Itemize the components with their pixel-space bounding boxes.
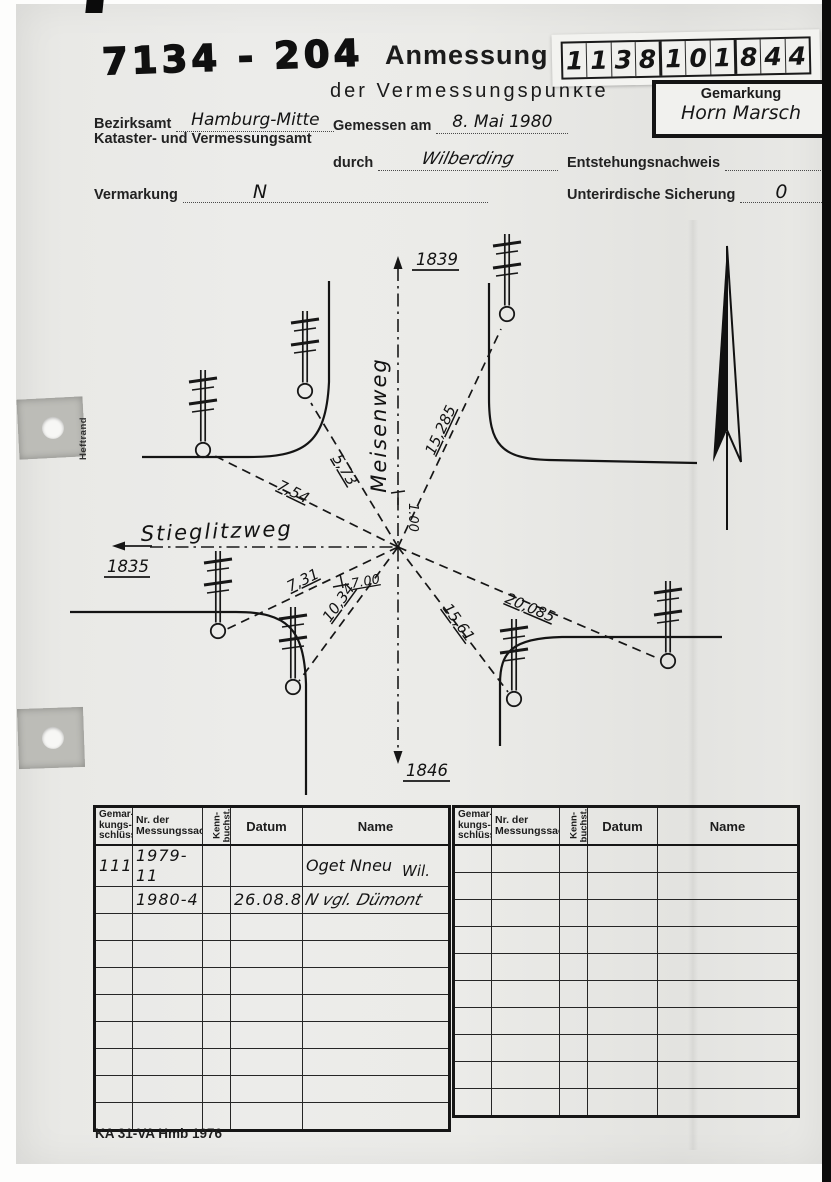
table-row: 1111979-11Oget NneuWil. — [95, 845, 450, 887]
table-cell — [454, 954, 492, 981]
table-cell — [454, 1062, 492, 1089]
arrow-down-icon — [394, 751, 403, 764]
survey-point-icon — [291, 311, 319, 398]
measurement-label: 15,285 — [421, 403, 460, 458]
table-cell — [492, 981, 560, 1008]
table-cell — [303, 941, 450, 968]
header-datum: Datum — [588, 807, 658, 846]
table-cell — [133, 1076, 203, 1103]
offset-label: 7.00 — [350, 572, 381, 592]
table-cell — [560, 1089, 588, 1117]
table-cell — [454, 1089, 492, 1117]
header-gemarkungsschluessel: Gemar- kungs- schlüssel — [454, 807, 492, 846]
table-cell — [95, 968, 133, 995]
table-cell: Oget NneuWil. — [303, 845, 450, 887]
dotted-line: 8. Mai 1980 — [436, 109, 568, 134]
table-cell — [658, 1035, 799, 1062]
measurement-label: 20,085 — [502, 589, 557, 626]
table-cell — [133, 995, 203, 1022]
table-row: 1980-426.08.80N vgl. Dümont — [95, 887, 450, 914]
corner-mark — [85, 0, 103, 13]
survey-point-icon — [654, 581, 682, 668]
table-cell — [203, 845, 231, 887]
table-row — [454, 1062, 799, 1089]
table-cell — [203, 941, 231, 968]
table-cell: 26.08.80 — [231, 887, 303, 914]
dotted-line — [725, 146, 831, 171]
form-code: KA 31-VA Hmb 1976 — [95, 1126, 222, 1141]
table-cell — [454, 1035, 492, 1062]
table-cell — [303, 995, 450, 1022]
record-table-left: Gemar- kungs- schlüssel Nr. der Messungs… — [93, 805, 451, 1132]
table-cell — [658, 845, 799, 873]
table-cell: N vgl. Dümont — [303, 887, 450, 914]
field-label: Bezirksamt — [94, 116, 171, 132]
table-cell — [560, 981, 588, 1008]
table-cell — [492, 900, 560, 927]
table-cell — [133, 914, 203, 941]
table-cell — [492, 1035, 560, 1062]
table-cell — [454, 1008, 492, 1035]
table-cell — [231, 914, 303, 941]
table-cell — [133, 968, 203, 995]
field-value: 0 — [775, 181, 787, 203]
table-cell — [658, 981, 799, 1008]
field-label: Entstehungsnachweis — [567, 155, 720, 171]
table-cell — [492, 1062, 560, 1089]
number-stamp: 1 1 3 8 1 0 1 8 4 4 — [551, 29, 820, 87]
table-cell — [203, 1076, 231, 1103]
table-cell — [492, 1089, 560, 1117]
stamp-cells: 1 1 3 8 1 0 1 8 4 4 — [561, 36, 812, 79]
record-table-right: Gemar- kungs- schlüssel Nr. der Messungs… — [452, 805, 800, 1118]
table-cell: 1979-11 — [133, 845, 203, 887]
table-cell — [492, 954, 560, 981]
table-cell — [560, 1035, 588, 1062]
form-title: Anmessung — [385, 40, 549, 71]
table-cell — [133, 941, 203, 968]
table-cell — [560, 1008, 588, 1035]
stamp-digit: 1 — [662, 41, 687, 76]
point-number-left: 1835 — [107, 557, 149, 576]
offset-tick-icon — [391, 491, 405, 505]
table-cell — [133, 1049, 203, 1076]
table-row — [454, 900, 799, 927]
table-cell — [95, 914, 133, 941]
survey-sketch: 1839 1846 1835 Stieglitzweg Meisenweg — [0, 230, 831, 810]
field-label: Vermarkung — [94, 187, 178, 203]
table-cell — [95, 995, 133, 1022]
gemarkung-label: Gemarkung — [656, 86, 826, 102]
field-unterirdische-sicherung: Unterirdische Sicherung 0 — [567, 179, 822, 203]
street-centerlines — [118, 268, 398, 754]
table-cell — [658, 1062, 799, 1089]
table-cell — [560, 1062, 588, 1089]
table-row — [454, 1008, 799, 1035]
table-cell — [231, 1022, 303, 1049]
document-number: 7134 - 204 — [101, 31, 364, 83]
table-cell — [303, 1076, 450, 1103]
table-cell — [658, 954, 799, 981]
table-cell — [231, 995, 303, 1022]
table-cell — [95, 1022, 133, 1049]
header-name: Name — [303, 807, 450, 846]
table-cell — [95, 1049, 133, 1076]
table-cell — [560, 927, 588, 954]
stamp-digit: 1 — [587, 43, 612, 78]
offset-label: 1.00 — [405, 503, 420, 532]
table-cell — [588, 954, 658, 981]
table-row — [95, 995, 450, 1022]
table-cell — [231, 941, 303, 968]
table-row — [454, 845, 799, 873]
table-header-row: Gemar- kungs- schlüssel Nr. der Messungs… — [95, 807, 450, 846]
table-cell — [203, 914, 231, 941]
table-cell — [492, 1008, 560, 1035]
table-header-row: Gemar- kungs- schlüssel Nr. der Messungs… — [454, 807, 799, 846]
table-cell — [492, 845, 560, 873]
gemarkung-value: Horn Marsch — [656, 102, 826, 124]
table-cell — [588, 927, 658, 954]
arrow-up-icon — [394, 256, 403, 269]
field-bezirksamt: Bezirksamt Hamburg-Mitte — [94, 108, 334, 132]
table-cell — [658, 1008, 799, 1035]
measurement-label: 7,31 — [284, 565, 322, 596]
table-cell — [303, 1049, 450, 1076]
north-arrow-icon — [713, 246, 741, 530]
table-cell — [588, 873, 658, 900]
field-value: Wilberding — [420, 149, 517, 169]
table-row — [454, 981, 799, 1008]
table-row — [454, 927, 799, 954]
table-cell — [454, 845, 492, 873]
table-cell — [588, 1008, 658, 1035]
table-cell — [588, 981, 658, 1008]
table-cell — [658, 1089, 799, 1117]
table-cell — [658, 927, 799, 954]
table-row — [95, 1049, 450, 1076]
header-messungssache: Nr. der Messungssache — [492, 807, 560, 846]
table-cell — [303, 914, 450, 941]
gemarkung-box: Gemarkung Horn Marsch — [652, 80, 830, 138]
measurement-label: 7,54 — [274, 476, 312, 507]
survey-point-icon — [204, 551, 232, 638]
field-durch: durch Wilberding — [333, 147, 558, 171]
measurement-label: 5,73 — [329, 451, 362, 489]
table-cell — [560, 954, 588, 981]
table-cell — [588, 1035, 658, 1062]
table-cell — [95, 1076, 133, 1103]
point-number-bottom: 1846 — [406, 761, 448, 780]
point-number-top: 1839 — [416, 250, 458, 269]
table-cell — [588, 1089, 658, 1117]
survey-point-icon — [493, 234, 521, 321]
table-cell — [454, 873, 492, 900]
table-cell — [231, 1103, 303, 1131]
table-cell — [231, 1076, 303, 1103]
header-gemarkungsschluessel: Gemar- kungs- schlüssel — [95, 807, 133, 846]
field-label: Unterirdische Sicherung — [567, 187, 735, 203]
table-cell — [454, 900, 492, 927]
table-row — [454, 873, 799, 900]
table-cell: 1980-4 — [133, 887, 203, 914]
dotted-line: Hamburg-Mitte — [176, 107, 334, 132]
table-cell — [133, 1022, 203, 1049]
dotted-line: Wilberding — [378, 146, 558, 171]
header-name: Name — [658, 807, 799, 846]
table-cell — [231, 968, 303, 995]
table-cell — [658, 873, 799, 900]
table-cell — [588, 1062, 658, 1089]
station-point — [396, 545, 400, 549]
table-row — [95, 1076, 450, 1103]
stamp-digit: 8 — [636, 42, 663, 77]
table-row — [454, 954, 799, 981]
table-cell — [203, 995, 231, 1022]
header-messungssache: Nr. der Messungssache — [133, 807, 203, 846]
table-cell — [560, 873, 588, 900]
street-name-vertical: Meisenweg — [367, 357, 391, 492]
stamp-digit: 4 — [761, 39, 786, 74]
stamp-digit: 1 — [710, 40, 737, 75]
dotted-line: N — [183, 178, 488, 203]
field-label: durch — [333, 155, 373, 171]
scanned-form: Heftrand 7134 - 204 Anmessung der Vermes… — [0, 0, 831, 1182]
table-row — [95, 914, 450, 941]
survey-point-icon — [189, 370, 217, 457]
table-cell — [303, 1022, 450, 1049]
table-cell — [303, 1103, 450, 1131]
table-cell — [454, 981, 492, 1008]
table-cell — [560, 845, 588, 873]
stamp-digit: 8 — [737, 39, 762, 74]
field-gemessen-am: Gemessen am 8. Mai 1980 — [333, 110, 568, 134]
table-cell — [454, 927, 492, 954]
field-entstehungsnachweis: Entstehungsnachweis — [567, 147, 831, 171]
table-row — [454, 1089, 799, 1117]
table-cell — [560, 900, 588, 927]
scan-edge — [822, 0, 831, 1182]
table-cell — [588, 900, 658, 927]
table-cell — [203, 968, 231, 995]
header-datum: Datum — [231, 807, 303, 846]
field-value: Hamburg-Mitte — [191, 110, 319, 130]
table-row — [95, 1022, 450, 1049]
table-row — [454, 1035, 799, 1062]
stamp-digit: 4 — [785, 38, 809, 72]
field-amt-line2: Kataster- und Vermessungsamt — [94, 131, 312, 147]
table-row — [95, 968, 450, 995]
stamp-digit: 1 — [563, 43, 588, 78]
table-cell — [492, 927, 560, 954]
table-cell — [203, 887, 231, 914]
survey-point-icon — [279, 607, 307, 694]
table-cell — [303, 968, 450, 995]
stamp-digit: 3 — [611, 42, 636, 77]
table-cell — [203, 1022, 231, 1049]
table-cell — [95, 941, 133, 968]
table-cell — [95, 887, 133, 914]
table-cell — [658, 900, 799, 927]
field-value: N — [253, 181, 267, 203]
table-cell: 111 — [95, 845, 133, 887]
field-vermarkung: Vermarkung N — [94, 179, 488, 203]
dotted-line: 0 — [740, 178, 822, 203]
header-kennbuchstabe: Kenn- buchst. — [203, 807, 231, 846]
measurement-label: 15,61 — [439, 600, 479, 645]
table-cell — [231, 1049, 303, 1076]
stamp-digit: 0 — [686, 40, 711, 75]
field-label: Gemessen am — [333, 118, 431, 134]
table-cell — [231, 845, 303, 887]
table-cell — [203, 1049, 231, 1076]
table-row — [95, 941, 450, 968]
header-kennbuchstabe: Kenn- buchst. — [560, 807, 588, 846]
street-name-horizontal: Stieglitzweg — [140, 517, 293, 546]
field-value: 8. Mai 1980 — [452, 112, 552, 132]
table-cell — [588, 845, 658, 873]
arrow-left-icon — [112, 542, 125, 551]
table-cell — [492, 873, 560, 900]
